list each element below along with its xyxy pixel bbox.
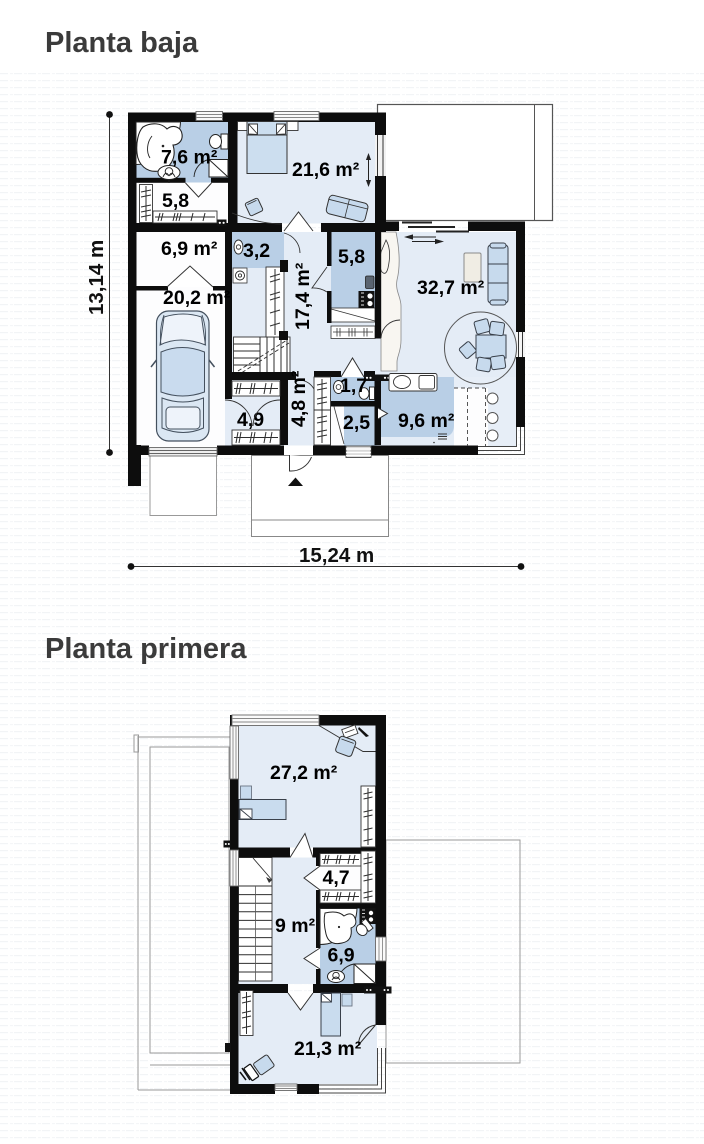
- svg-text:20,2 m²: 20,2 m²: [163, 287, 231, 309]
- svg-text:17,4 m²: 17,4 m²: [292, 262, 314, 330]
- svg-text:5,8: 5,8: [338, 246, 365, 268]
- svg-text:9 m²: 9 m²: [275, 915, 316, 937]
- svg-text:4,7: 4,7: [323, 867, 350, 889]
- svg-text:4,9: 4,9: [237, 409, 264, 431]
- svg-text:1,7: 1,7: [340, 375, 367, 397]
- svg-text:7,6 m²: 7,6 m²: [161, 147, 218, 169]
- svg-text:2,5: 2,5: [343, 412, 370, 434]
- svg-text:27,2 m²: 27,2 m²: [270, 762, 338, 784]
- svg-text:6,9: 6,9: [328, 945, 355, 967]
- svg-text:21,3 m²: 21,3 m²: [294, 1038, 362, 1060]
- svg-text:9,6 m²: 9,6 m²: [398, 410, 455, 432]
- svg-text:Planta baja: Planta baja: [45, 27, 199, 59]
- svg-text:15,24 m: 15,24 m: [299, 544, 374, 567]
- svg-text:3,2: 3,2: [243, 240, 270, 262]
- svg-text:32,7 m²: 32,7 m²: [417, 277, 485, 299]
- svg-text:Planta primera: Planta primera: [45, 633, 247, 665]
- svg-text:13,14 m: 13,14 m: [85, 240, 108, 315]
- svg-text:6,9 m²: 6,9 m²: [161, 238, 218, 260]
- svg-text:5,8: 5,8: [162, 190, 189, 212]
- svg-text:21,6 m²: 21,6 m²: [292, 159, 360, 181]
- svg-text:4,8 m²: 4,8 m²: [288, 370, 310, 427]
